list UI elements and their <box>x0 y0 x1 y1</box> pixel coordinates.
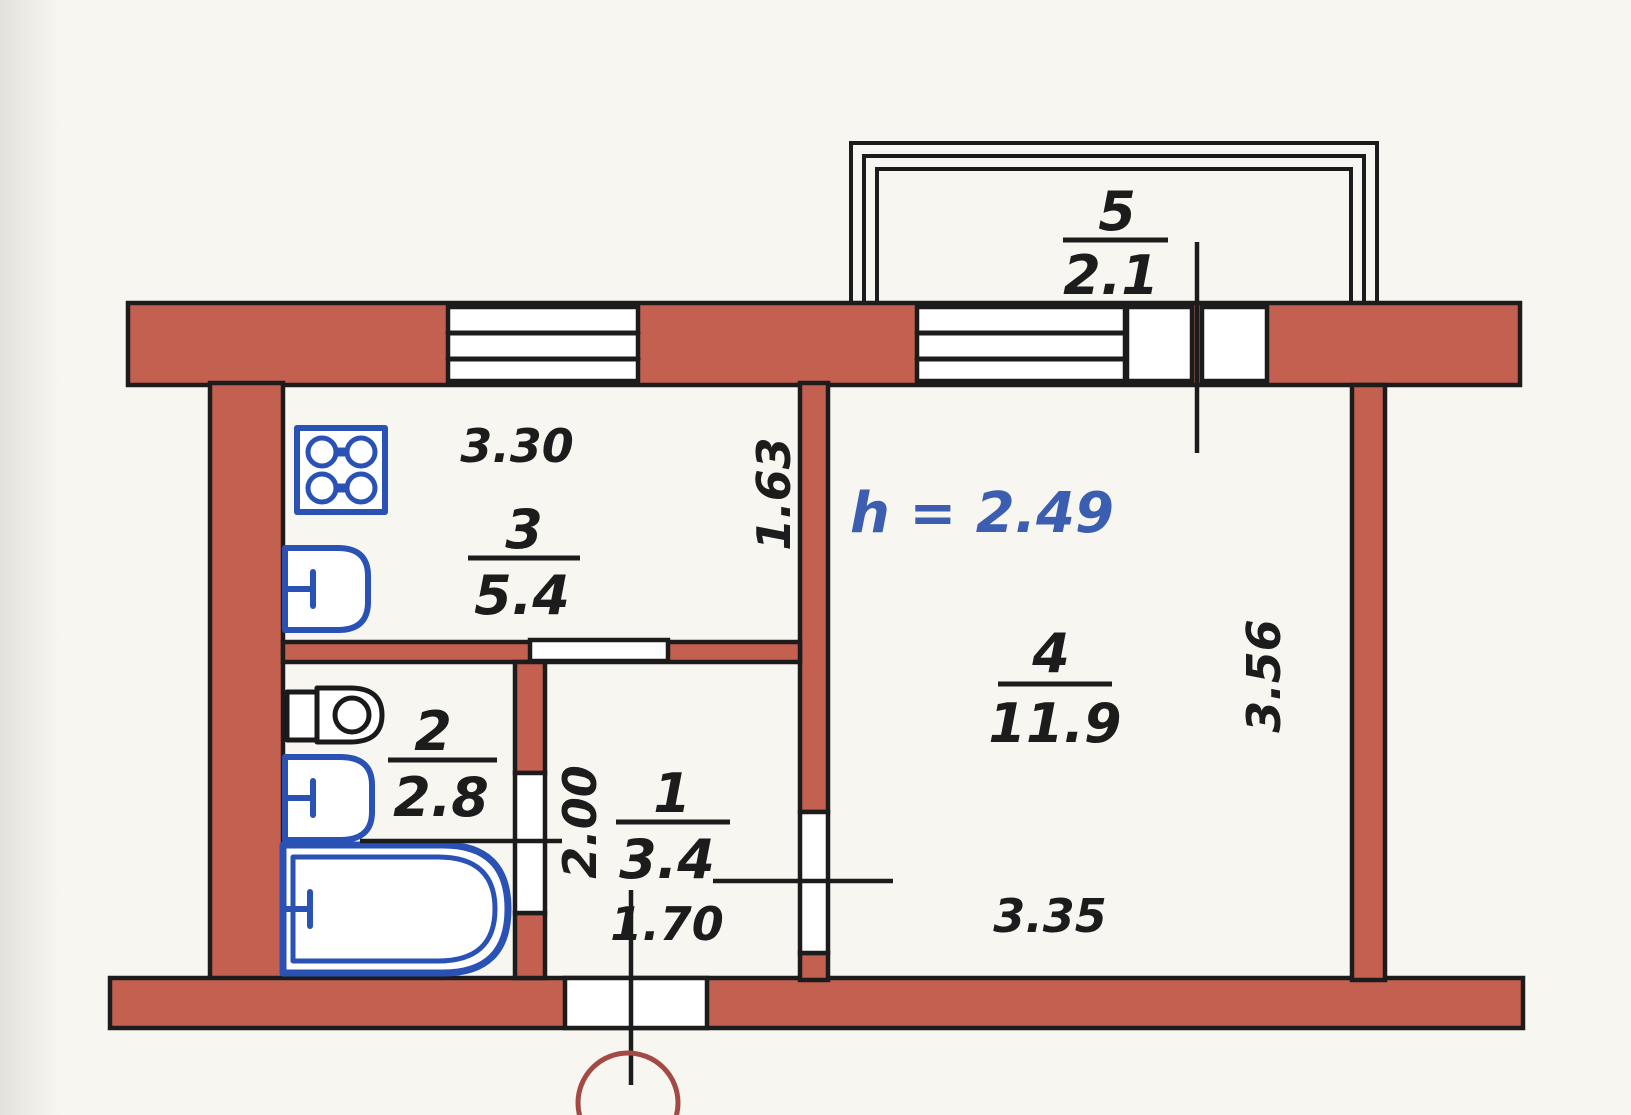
room3-number: 3 <box>505 498 543 561</box>
room3-area: 5.4 <box>474 564 570 627</box>
bathtub-icon <box>283 845 508 973</box>
ceiling-height-note: h = 2.49 <box>850 481 1114 546</box>
room2-area: 2.8 <box>393 766 489 829</box>
room-depth-dim: 3.56 <box>1237 619 1291 733</box>
room1-area: 3.4 <box>619 828 715 891</box>
kitchen-depth-dim: 1.63 <box>747 437 801 551</box>
bath-depth-dim: 2.00 <box>553 765 607 879</box>
room5-area: 2.1 <box>1063 244 1159 307</box>
kitchen-width-dim: 3.30 <box>460 419 574 473</box>
room1-number: 1 <box>653 762 691 825</box>
room5-number: 5 <box>1098 180 1136 243</box>
room4-number: 4 <box>1031 622 1070 685</box>
room4-area: 11.9 <box>988 692 1121 755</box>
wall-right <box>1352 385 1385 980</box>
door-opening-entrance <box>565 978 707 1028</box>
wall-top-exterior <box>128 303 1520 385</box>
hall-width-dim: 1.70 <box>610 897 724 951</box>
wall-bath-divider-upper <box>515 662 545 773</box>
toilet-icon <box>287 688 382 742</box>
room2-number: 2 <box>414 700 452 763</box>
wall-middle-lower <box>800 953 828 980</box>
entry-circle-mark <box>578 1053 678 1115</box>
door-opening-kitchen <box>530 640 668 661</box>
floor-plan-scan: 3.30 3 5.4 1.63 2 2.8 2.00 1 3.4 1.70 h … <box>0 0 1631 1115</box>
room-width-dim: 3.35 <box>993 889 1107 943</box>
wall-bottom-exterior <box>110 978 1523 1028</box>
wall-middle-upper <box>800 383 828 812</box>
kitchen-sink-icon <box>285 548 368 630</box>
wall-left-exterior <box>210 383 283 980</box>
window-room4 <box>917 307 1125 381</box>
wall-bath-divider-lower <box>515 913 545 978</box>
floor-plan-drawing: 3.30 3 5.4 1.63 2 2.8 2.00 1 3.4 1.70 h … <box>0 0 1631 1115</box>
bath-sink-icon <box>285 757 372 840</box>
window-kitchen <box>448 307 638 381</box>
stove-icon <box>297 428 385 512</box>
